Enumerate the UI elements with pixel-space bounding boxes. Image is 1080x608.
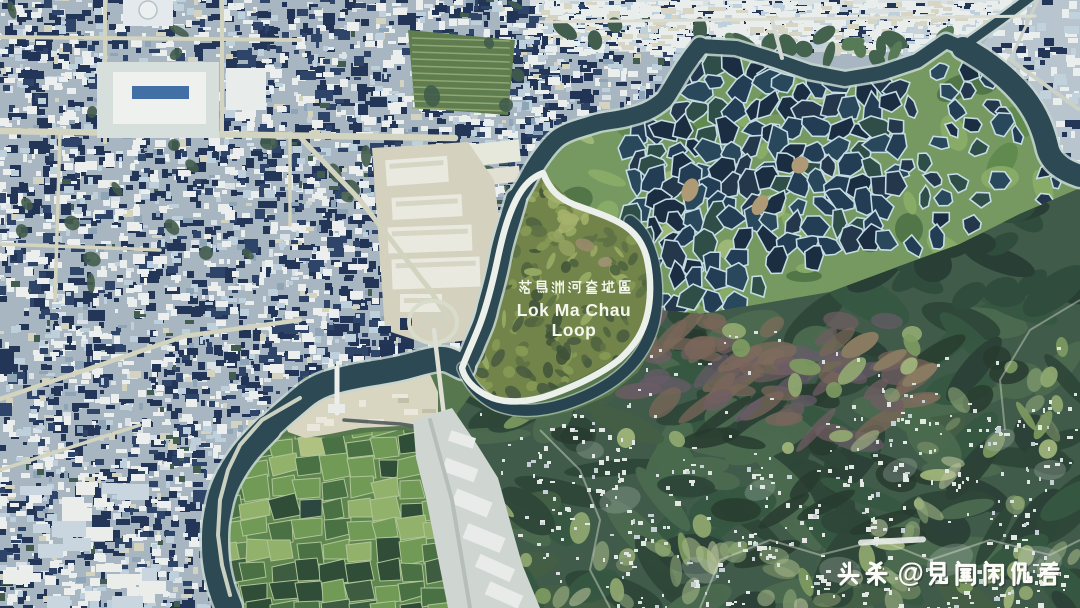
svg-text:Lok Ma Chau: Lok Ma Chau [517, 300, 631, 320]
svg-text:Loop: Loop [552, 320, 597, 340]
svg-text:@: @ [898, 558, 924, 588]
